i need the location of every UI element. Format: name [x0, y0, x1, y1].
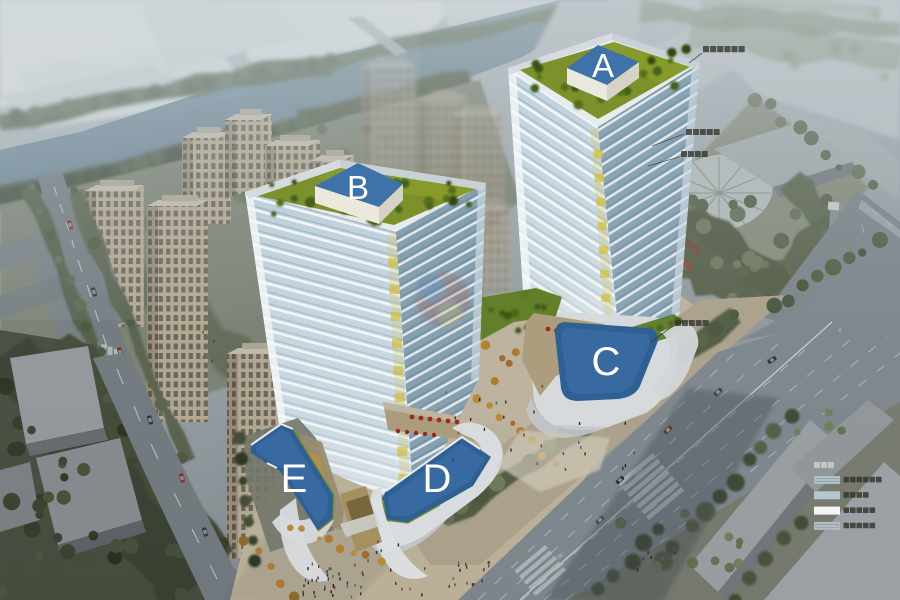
svg-text:A: A — [592, 47, 614, 84]
svg-text:C: C — [592, 340, 621, 384]
svg-text:D: D — [423, 457, 452, 501]
svg-text:E: E — [281, 457, 308, 501]
svg-text:B: B — [347, 169, 369, 206]
